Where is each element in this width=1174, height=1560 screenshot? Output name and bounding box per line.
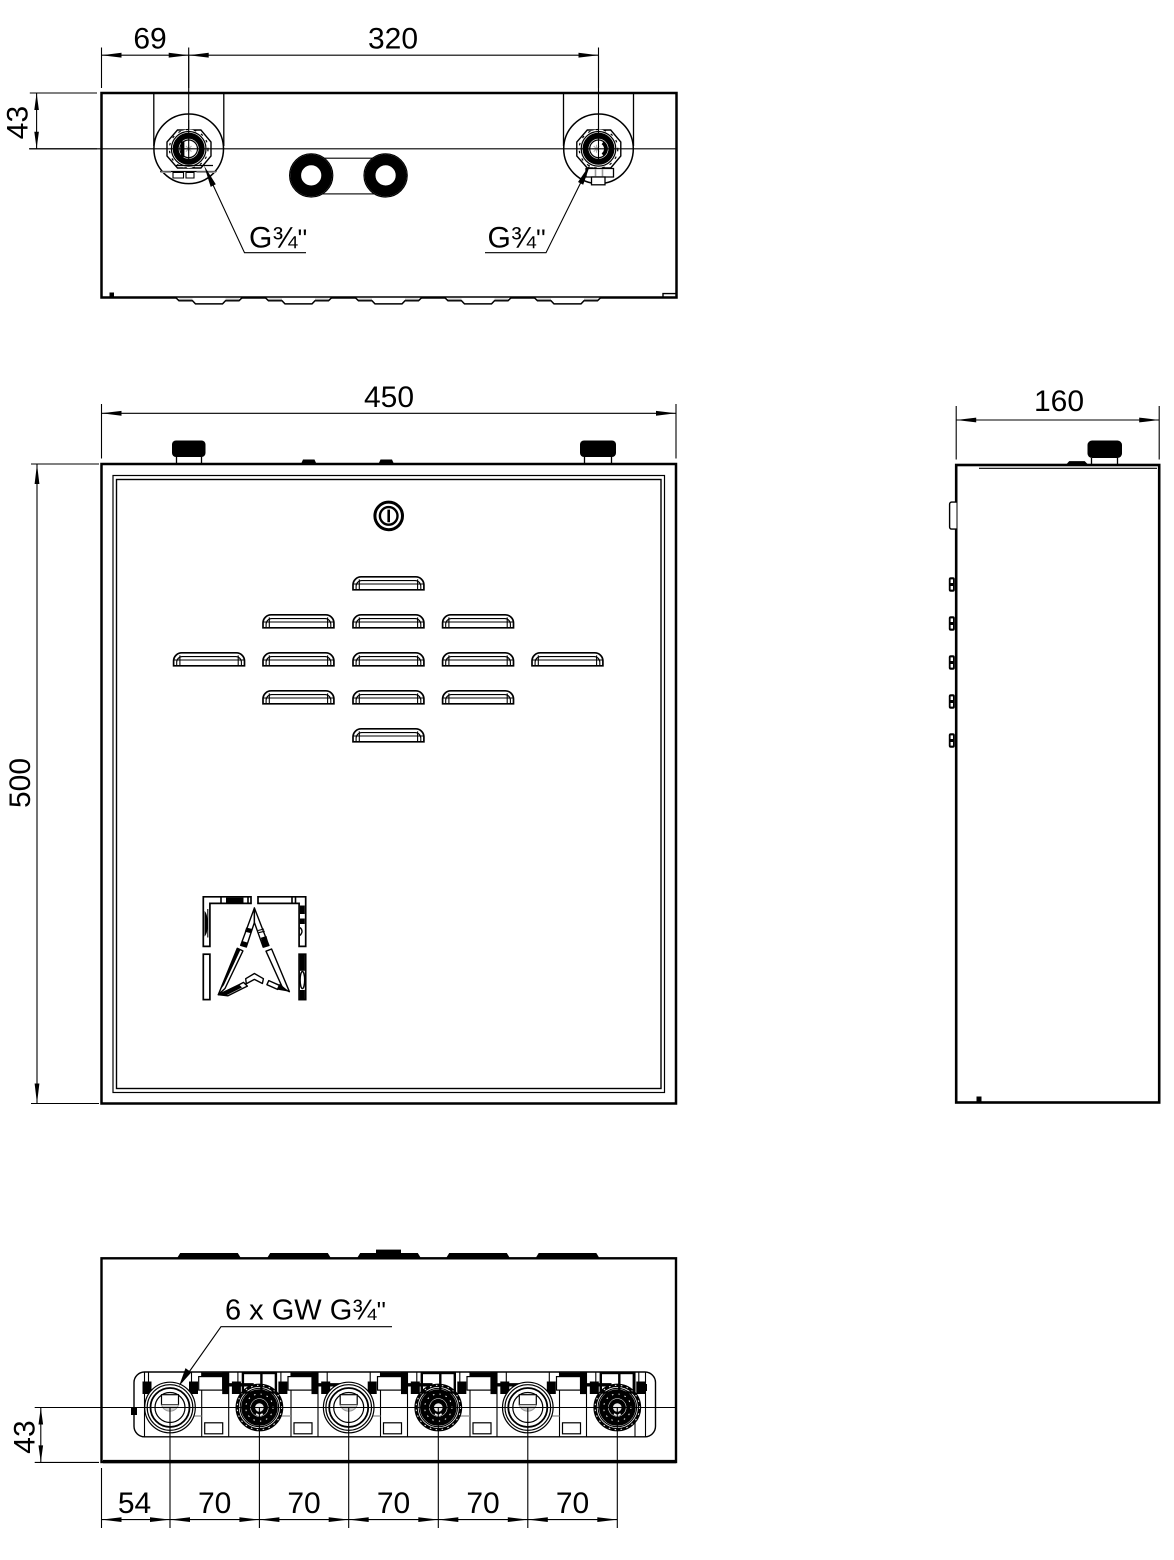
svg-text:70: 70 — [287, 1487, 320, 1520]
svg-text:G¾'': G¾'' — [249, 222, 307, 255]
svg-text:43: 43 — [9, 1420, 42, 1453]
svg-text:43: 43 — [2, 106, 35, 139]
svg-text:160: 160 — [1034, 385, 1084, 418]
svg-text:70: 70 — [466, 1487, 499, 1520]
svg-text:G¾'': G¾'' — [488, 222, 546, 255]
svg-text:450: 450 — [364, 381, 414, 414]
svg-text:500: 500 — [4, 758, 37, 808]
svg-text:70: 70 — [377, 1487, 410, 1520]
svg-text:70: 70 — [198, 1487, 231, 1520]
svg-text:69: 69 — [133, 22, 166, 55]
svg-text:70: 70 — [556, 1487, 589, 1520]
svg-text:6 x GW G¾'': 6 x GW G¾'' — [225, 1295, 386, 1327]
svg-text:320: 320 — [368, 22, 418, 55]
svg-text:54: 54 — [118, 1487, 151, 1520]
